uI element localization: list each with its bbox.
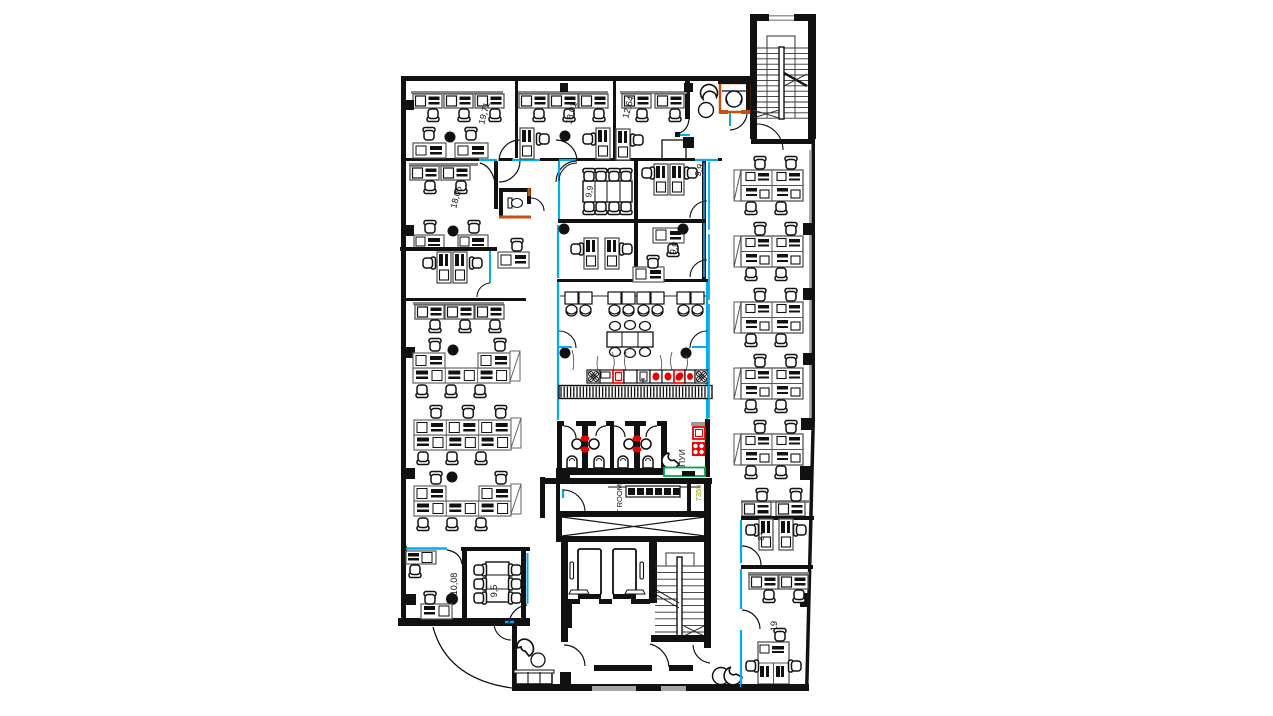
svg-text:9,5: 9,5 (489, 585, 499, 598)
svg-text:ПУИ: ПУИ (677, 449, 687, 467)
svg-text:8+: 8+ (757, 531, 766, 540)
svg-text:10,08: 10,08 (449, 573, 459, 596)
svg-text:7355: 7355 (694, 485, 703, 502)
svg-text:9,9: 9,9 (583, 185, 595, 199)
